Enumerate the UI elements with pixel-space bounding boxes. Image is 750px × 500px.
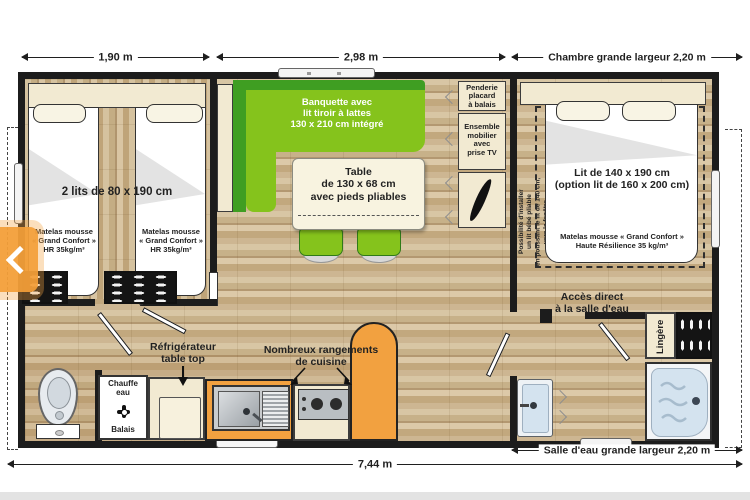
toilet-flush (55, 411, 64, 420)
stool (299, 226, 343, 256)
wardrobe-label: Penderie placard à balais (459, 84, 505, 109)
beds-size-label: 2 lits de 80 x 190 cm (28, 186, 206, 200)
sink-drain (530, 402, 537, 409)
mattress-label-2: Matelas mousse « Grand Confort » HR 35kg… (137, 228, 205, 255)
toilet-tank (36, 424, 80, 439)
dim-bathroom-width: Salle d'eau grande largeur 2,20 m (512, 450, 742, 451)
sink-drainer (262, 391, 289, 427)
hob-cabinet (293, 384, 350, 441)
banquette-seat-left (246, 150, 276, 212)
shower-tray (645, 362, 712, 441)
wall-bedroom-left (210, 79, 217, 272)
window-right (711, 170, 720, 248)
dim-label: 1,90 m (93, 51, 137, 63)
banquette-back-left (233, 84, 246, 212)
tv-unit-label: Ensemble mobilier avec prise TV (459, 123, 505, 158)
table-label: Table de 130 x 68 cm avec pieds pliables (293, 166, 424, 203)
sink-basin (522, 384, 549, 433)
single-bed-2 (135, 107, 206, 296)
bathroom-access-label: Accès direct à la salle d'eau (534, 291, 650, 316)
double-bed-label: Lit de 140 x 190 cm (option lit de 160 x… (548, 167, 696, 192)
toilet-bowl (38, 368, 78, 426)
dim-bedroom-right-width: Chambre grande largeur 2,20 m (512, 57, 742, 58)
sink-faucet (520, 404, 529, 407)
bed-drawer-rack (104, 271, 177, 304)
banquette-side-shelf (217, 84, 233, 212)
sink-tap (252, 413, 262, 422)
sink-bowl (218, 391, 260, 427)
tv-unit-cabinet: Ensemble mobilier avec prise TV (458, 113, 506, 170)
dim-label: Chambre grande largeur 2,20 m (543, 51, 711, 63)
table-fold-line (298, 215, 419, 216)
dim-label: 2,98 m (339, 51, 383, 63)
mirror-blade (467, 177, 494, 223)
linen-shelf-rack (676, 312, 712, 359)
headboard-shelf-right (520, 82, 706, 105)
wall-bedroom-right-lower (510, 376, 517, 441)
pillow (556, 101, 610, 121)
fridge-door (159, 397, 201, 439)
wardrobe-cabinet: Penderie placard à balais (458, 81, 506, 111)
hob-knob (302, 397, 306, 401)
duvet-fold (136, 108, 205, 295)
dim-label: Salle d'eau grande largeur 2,20 m (539, 444, 715, 456)
pillow (622, 101, 676, 121)
mirror-cabinet (458, 172, 506, 228)
tank-button (55, 430, 64, 436)
valve-icon (117, 405, 130, 418)
leader-arrows (120, 358, 400, 392)
window-left (14, 163, 23, 224)
window-latch (337, 72, 341, 75)
hob-knob (302, 407, 306, 411)
carousel-prev-button[interactable] (0, 227, 38, 292)
double-bed-mattress-label: Matelas mousse « Grand Confort » Haute R… (548, 233, 696, 251)
toilet-seat (47, 377, 71, 409)
burner (311, 398, 323, 410)
pillow (33, 104, 86, 123)
dim-living-width: 2,98 m (217, 57, 505, 58)
window-latch (307, 72, 311, 75)
dim-label: 7,44 m (353, 458, 397, 470)
page-bottom-strip (0, 492, 750, 500)
hob (298, 389, 349, 420)
dim-bedroom-left-width: 1,90 m (22, 57, 209, 58)
dining-table: Table de 130 x 68 cm avec pieds pliables (292, 158, 425, 230)
wall-bedroom-right-upper (510, 79, 517, 312)
banquette-label: Banquette avec lit tiroir à lattes 130 x… (252, 97, 422, 131)
stool (357, 226, 401, 256)
broom-label: Balais (100, 425, 146, 434)
linen-closet-label: Lingère (655, 316, 669, 358)
shower-drain (692, 397, 700, 405)
envelope-dashed-right (725, 129, 742, 448)
linen-closet: Lingère (645, 312, 676, 359)
floorplan-page: 2 lits de 80 x 190 cm Matelas mousse « G… (0, 0, 750, 500)
bathroom-sink (517, 379, 553, 437)
sink-drain (243, 408, 250, 415)
dim-total-length: 7,44 m (8, 464, 742, 465)
window-top (278, 68, 375, 78)
chevron-left-icon (6, 246, 34, 274)
burner (330, 398, 342, 410)
pillow (146, 104, 203, 123)
